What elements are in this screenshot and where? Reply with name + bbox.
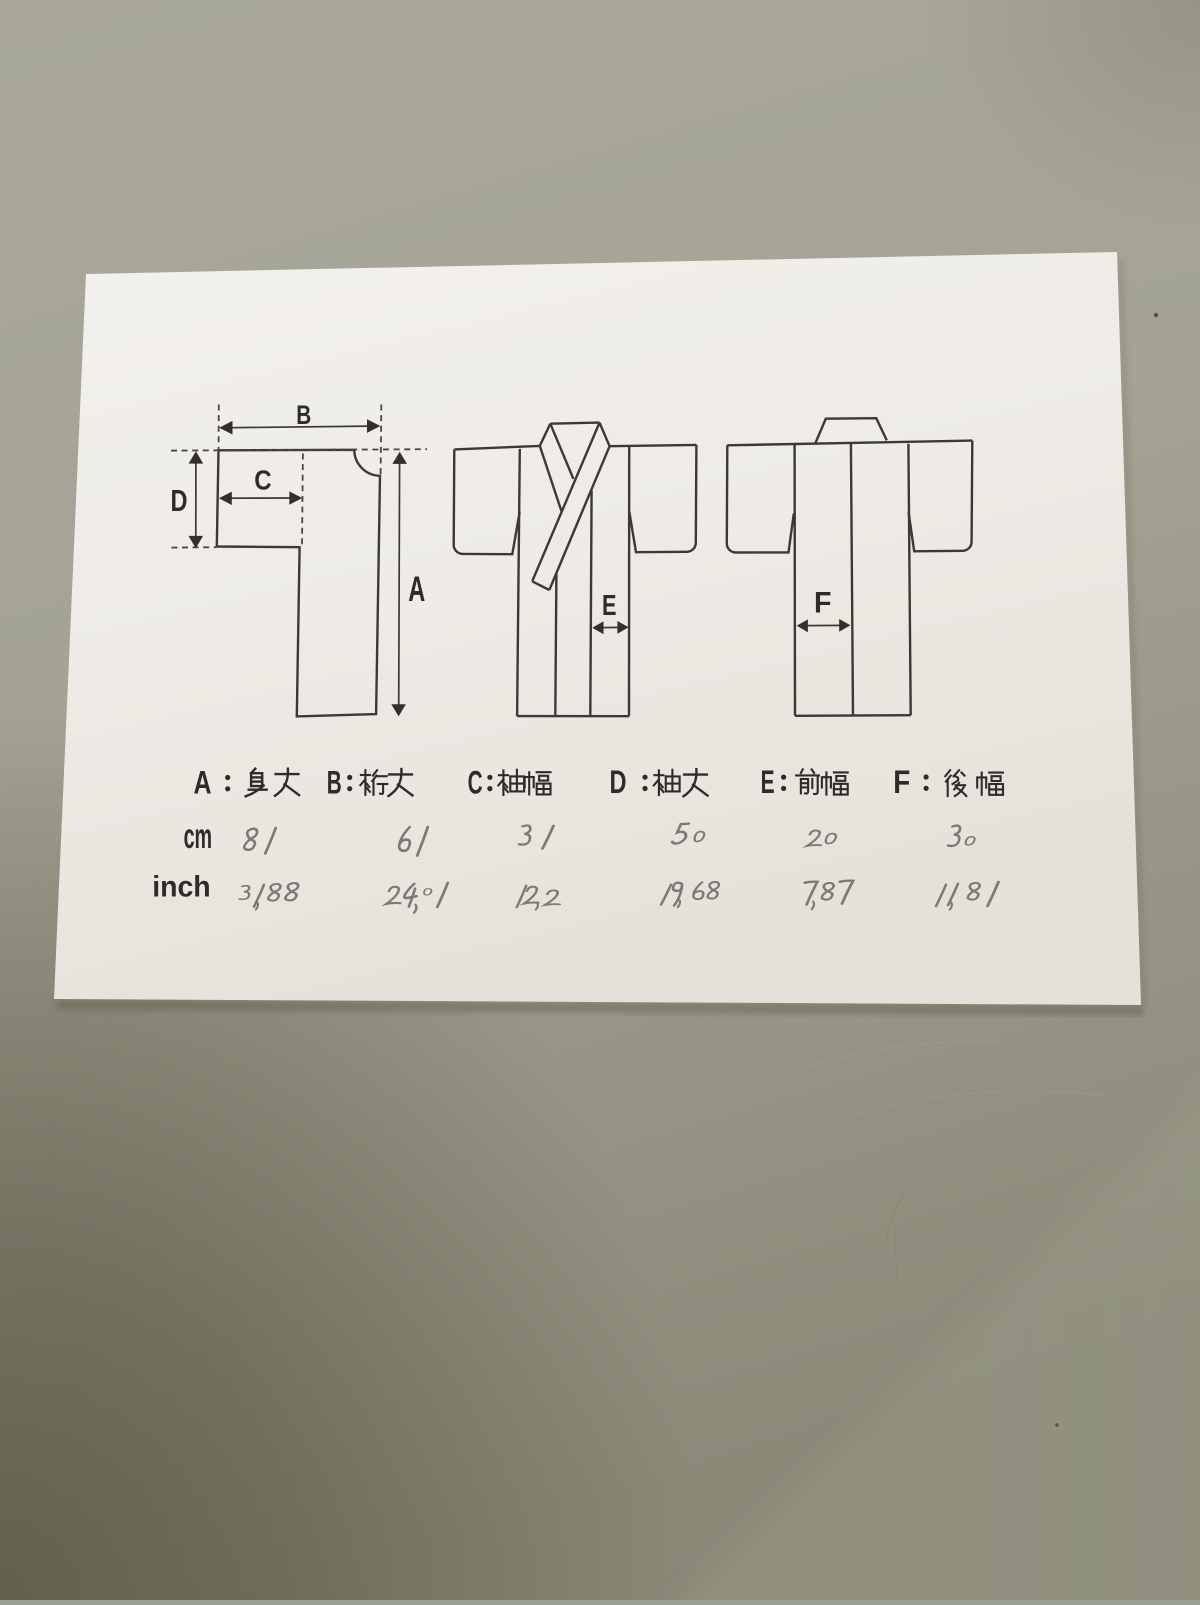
svg-text:cm: cm (184, 817, 213, 856)
svg-text:E: E (761, 764, 775, 800)
svg-text:C: C (468, 764, 483, 800)
svg-text:B: B (327, 765, 342, 801)
svg-text:A: A (408, 570, 425, 609)
svg-text:B: B (296, 400, 311, 430)
svg-text:inch: inch (152, 870, 211, 903)
svg-text:D: D (610, 764, 627, 800)
svg-text:F: F (814, 586, 832, 619)
svg-text:A: A (194, 765, 212, 801)
svg-text:C: C (254, 464, 271, 495)
svg-text:F: F (893, 764, 910, 800)
svg-text:D: D (171, 483, 188, 518)
svg-text:E: E (602, 590, 617, 622)
